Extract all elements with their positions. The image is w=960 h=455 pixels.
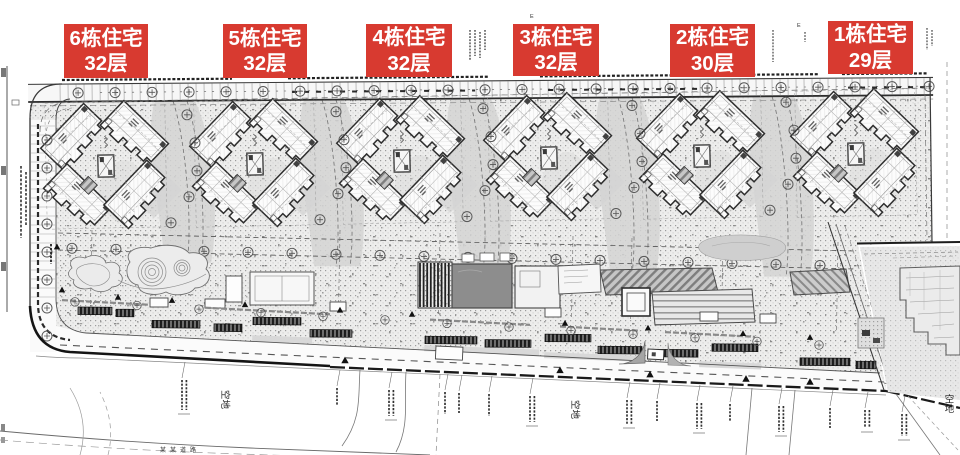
svg-text:E: E	[530, 14, 534, 20]
svg-text:空地: 空地	[219, 390, 231, 410]
svg-text:某某道路: 某某道路	[160, 446, 200, 454]
svg-text:空地: 空地	[943, 393, 955, 413]
svg-text:空地: 空地	[569, 400, 581, 420]
svg-text:E: E	[797, 23, 801, 29]
